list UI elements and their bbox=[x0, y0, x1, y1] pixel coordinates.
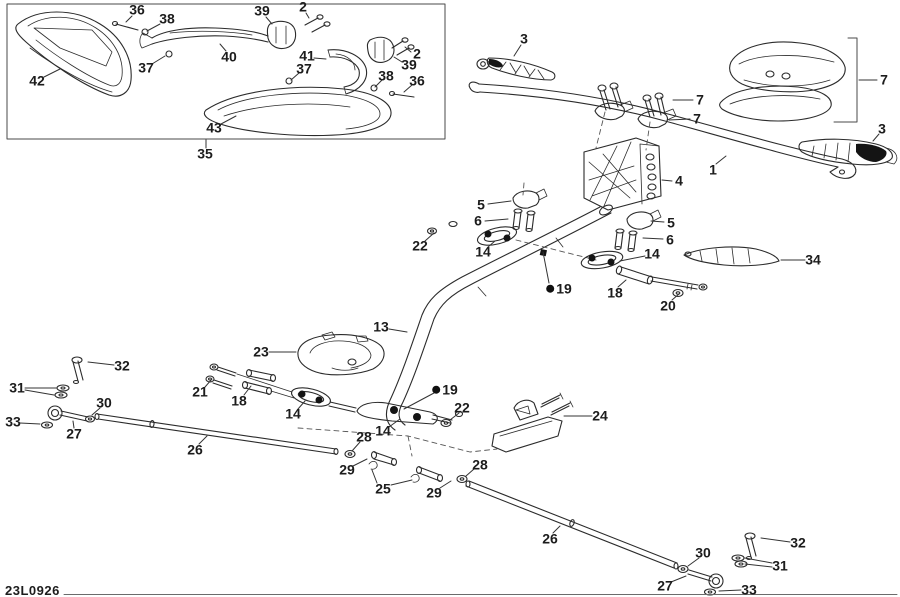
brake-lever-drawing bbox=[140, 28, 268, 48]
part-number-text: 42 bbox=[29, 74, 45, 88]
part-number-text: 19 bbox=[442, 383, 458, 397]
part-label-7: 7 bbox=[880, 73, 888, 87]
part-label-43: 43 bbox=[206, 121, 222, 135]
part-label-6: 6 bbox=[474, 214, 482, 228]
leader-line bbox=[719, 590, 741, 591]
leader-line bbox=[671, 576, 686, 582]
part-number-text: 26 bbox=[187, 443, 203, 457]
part-label-14: 14 bbox=[644, 247, 660, 261]
linkage-hardware-drawing bbox=[345, 451, 467, 483]
part-label-14: 14 bbox=[375, 424, 391, 438]
part-label-31: 31 bbox=[9, 381, 25, 395]
part-number-text: 18 bbox=[607, 286, 623, 300]
part-number-text: 27 bbox=[657, 579, 673, 593]
part-label-30: 30 bbox=[695, 546, 711, 560]
throttle-lever-drawing bbox=[328, 50, 367, 94]
part-number-text: 31 bbox=[9, 381, 25, 395]
inset-fasteners-drawing bbox=[113, 22, 415, 98]
pad-bracket-line bbox=[834, 38, 857, 122]
parts-diagram: 23L0926 36383924041239373738364243353777… bbox=[0, 0, 900, 597]
clip-marker-icon bbox=[432, 386, 440, 394]
part-number-text: 18 bbox=[231, 394, 247, 408]
part-number-text: 29 bbox=[426, 486, 442, 500]
part-label-22: 22 bbox=[412, 239, 428, 253]
leader-line bbox=[25, 390, 54, 395]
part-number-text: 13 bbox=[373, 320, 389, 334]
part-label-19: 19 bbox=[432, 383, 458, 397]
leader-line bbox=[44, 69, 60, 77]
part-label-18: 18 bbox=[607, 286, 623, 300]
part-number-text: 3 bbox=[878, 122, 886, 136]
part-number-text: 7 bbox=[693, 112, 701, 126]
part-label-28: 28 bbox=[356, 430, 372, 444]
part-number-text: 22 bbox=[412, 239, 428, 253]
part-number-text: 35 bbox=[197, 147, 213, 161]
part-label-1: 1 bbox=[709, 163, 717, 177]
part-label-42: 42 bbox=[29, 74, 45, 88]
leader-line bbox=[543, 252, 549, 283]
tierod-right-drawing bbox=[466, 481, 756, 595]
part-label-27: 27 bbox=[66, 427, 82, 441]
part-label-26: 26 bbox=[542, 532, 558, 546]
part-number-text: 2 bbox=[299, 0, 307, 14]
part-number-text: 32 bbox=[114, 359, 130, 373]
part-number-text: 28 bbox=[472, 458, 488, 472]
part-label-35: 35 bbox=[197, 147, 213, 161]
part-label-13: 13 bbox=[373, 320, 389, 334]
part-number-text: 34 bbox=[805, 253, 821, 267]
part-label-21: 21 bbox=[192, 385, 208, 399]
part-number-text: 39 bbox=[401, 58, 417, 72]
part-number-text: 7 bbox=[696, 93, 704, 107]
riser-block-drawing bbox=[584, 138, 661, 210]
part-number-text: 22 bbox=[454, 401, 470, 415]
leader-line bbox=[745, 558, 772, 563]
part-label-40: 40 bbox=[221, 50, 237, 64]
part-number-text: 23 bbox=[253, 345, 269, 359]
part-number-text: 1 bbox=[709, 163, 717, 177]
part-label-3: 3 bbox=[878, 122, 886, 136]
part-label-20: 20 bbox=[660, 299, 676, 313]
part-label-7: 7 bbox=[696, 93, 704, 107]
clip-marker-icon bbox=[546, 285, 554, 293]
part-label-33: 33 bbox=[741, 583, 757, 597]
part-number-text: 20 bbox=[660, 299, 676, 313]
part-label-2: 2 bbox=[299, 0, 307, 14]
part-label-27: 27 bbox=[657, 579, 673, 593]
leader-line bbox=[314, 58, 326, 59]
part-number-text: 39 bbox=[254, 4, 270, 18]
part-label-24: 24 bbox=[592, 409, 608, 423]
part-label-32: 32 bbox=[790, 536, 806, 550]
part-number-text: 26 bbox=[542, 532, 558, 546]
part-number-text: 37 bbox=[138, 61, 154, 75]
part-number-text: 40 bbox=[221, 50, 237, 64]
part-label-29: 29 bbox=[426, 486, 442, 500]
part-label-36: 36 bbox=[129, 3, 145, 17]
part-label-29: 29 bbox=[339, 463, 355, 477]
part-label-38: 38 bbox=[159, 12, 175, 26]
part-label-37: 37 bbox=[138, 61, 154, 75]
part-label-18: 18 bbox=[231, 394, 247, 408]
part-number-text: 30 bbox=[695, 546, 711, 560]
part-number-text: 33 bbox=[5, 415, 21, 429]
part-number-text: 19 bbox=[556, 282, 572, 296]
part-label-30: 30 bbox=[96, 396, 112, 410]
part-label-33: 33 bbox=[5, 415, 21, 429]
part-label-39: 39 bbox=[254, 4, 270, 18]
part-number-text: 4 bbox=[675, 174, 683, 188]
part-label-22: 22 bbox=[454, 401, 470, 415]
handlebar-pad-drawing bbox=[720, 38, 857, 122]
support-bracket-drawing bbox=[492, 393, 573, 452]
part-number-text: 30 bbox=[96, 396, 112, 410]
part-number-text: 14 bbox=[475, 245, 491, 259]
grip-left-drawing bbox=[477, 58, 555, 80]
handguard-right-drawing bbox=[204, 87, 391, 135]
construction-lines bbox=[298, 112, 650, 456]
leader-line bbox=[662, 180, 672, 181]
leader-line bbox=[221, 116, 236, 124]
leader-line bbox=[745, 564, 772, 567]
part-label-19: 19 bbox=[546, 282, 572, 296]
part-number-text: 38 bbox=[159, 12, 175, 26]
part-label-23: 23 bbox=[253, 345, 269, 359]
part-number-text: 36 bbox=[129, 3, 145, 17]
leader-line bbox=[20, 423, 40, 424]
leader-line bbox=[620, 256, 645, 261]
part-number-text: 7 bbox=[880, 73, 888, 87]
part-label-39: 39 bbox=[401, 58, 417, 72]
part-number-text: 27 bbox=[66, 427, 82, 441]
part-label-14: 14 bbox=[285, 407, 301, 421]
part-number-text: 6 bbox=[474, 214, 482, 228]
part-label-7: 7 bbox=[693, 112, 701, 126]
leader-line bbox=[391, 480, 412, 485]
leader-lines bbox=[20, 13, 879, 591]
steering-boot-drawing bbox=[298, 332, 384, 375]
leader-line bbox=[485, 219, 508, 221]
part-number-text: 38 bbox=[378, 69, 394, 83]
part-number-text: 5 bbox=[477, 198, 485, 212]
leader-line bbox=[761, 538, 790, 542]
leader-line bbox=[147, 24, 160, 31]
part-number-text: 36 bbox=[409, 74, 425, 88]
part-number-text: 14 bbox=[375, 424, 391, 438]
leader-line bbox=[669, 119, 690, 120]
part-label-25: 25 bbox=[375, 482, 391, 496]
part-number-text: 31 bbox=[772, 559, 788, 573]
part-label-36: 36 bbox=[409, 74, 425, 88]
drawing-code: 23L0926 bbox=[5, 583, 60, 597]
part-number-text: 6 bbox=[666, 233, 674, 247]
part-number-text: 5 bbox=[667, 216, 675, 230]
part-number-text: 32 bbox=[790, 536, 806, 550]
part-label-6: 6 bbox=[666, 233, 674, 247]
part-label-14: 14 bbox=[475, 245, 491, 259]
part-number-text: 21 bbox=[192, 385, 208, 399]
part-number-text: 25 bbox=[375, 482, 391, 496]
diagram-artwork bbox=[0, 0, 900, 597]
part-number-text: 28 bbox=[356, 430, 372, 444]
part-label-38: 38 bbox=[378, 69, 394, 83]
part-label-37: 37 bbox=[296, 62, 312, 76]
part-number-text: 43 bbox=[206, 121, 222, 135]
part-number-text: 33 bbox=[741, 583, 757, 597]
part-label-28: 28 bbox=[472, 458, 488, 472]
part-number-text: 29 bbox=[339, 463, 355, 477]
part-label-34: 34 bbox=[805, 253, 821, 267]
leader-line bbox=[404, 393, 434, 409]
leader-line bbox=[88, 362, 114, 365]
part-label-3: 3 bbox=[520, 32, 528, 46]
part-number-text: 14 bbox=[644, 247, 660, 261]
part-label-5: 5 bbox=[477, 198, 485, 212]
part-label-32: 32 bbox=[114, 359, 130, 373]
leader-line bbox=[389, 329, 407, 332]
leader-line bbox=[643, 238, 663, 239]
part-label-4: 4 bbox=[675, 174, 683, 188]
part-number-text: 37 bbox=[296, 62, 312, 76]
part-number-text: 14 bbox=[285, 407, 301, 421]
part-label-26: 26 bbox=[187, 443, 203, 457]
leader-line bbox=[716, 156, 726, 164]
lever-clamp-left-drawing bbox=[267, 15, 330, 49]
part-label-31: 31 bbox=[772, 559, 788, 573]
leader-line bbox=[488, 201, 511, 204]
part-number-text: 24 bbox=[592, 409, 608, 423]
part-number-text: 3 bbox=[520, 32, 528, 46]
part-label-5: 5 bbox=[667, 216, 675, 230]
